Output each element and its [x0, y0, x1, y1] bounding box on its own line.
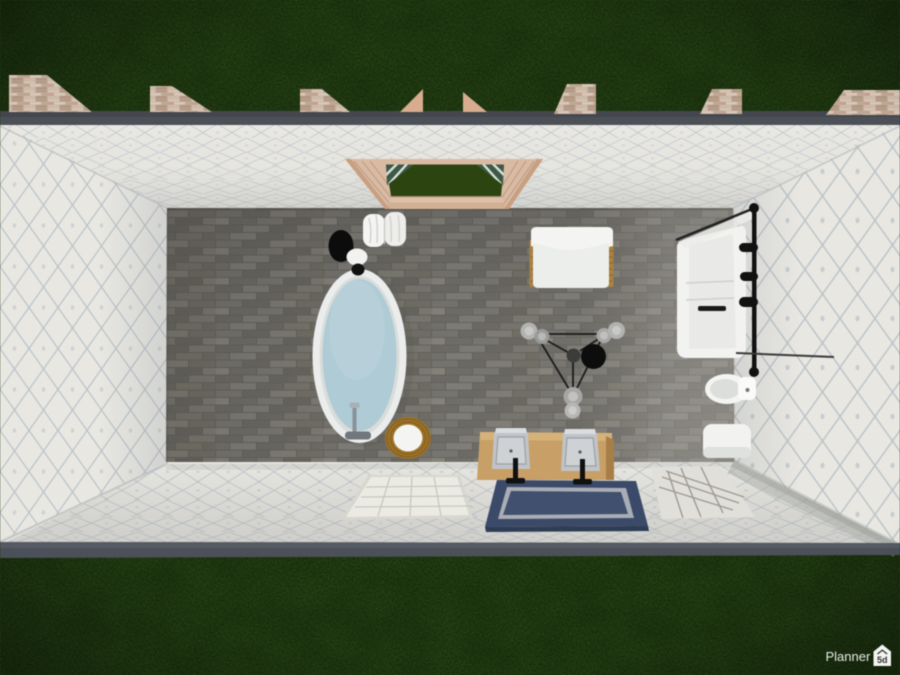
svg-text:5d: 5d: [877, 655, 888, 665]
svg-text:Planner: Planner: [826, 649, 871, 664]
